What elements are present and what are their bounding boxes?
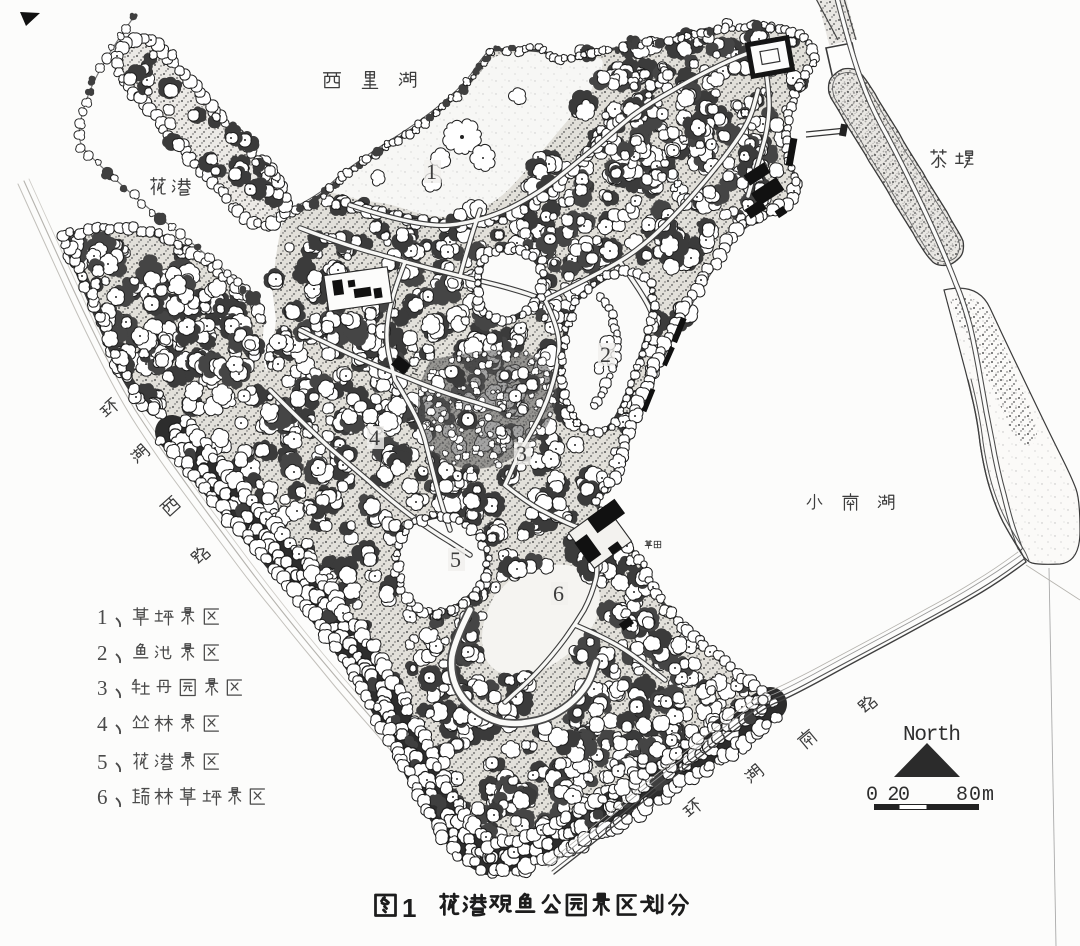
svg-text:1: 1: [97, 605, 108, 629]
svg-text:80m: 80m: [956, 784, 994, 807]
svg-text:1: 1: [426, 159, 437, 184]
svg-text:5: 5: [450, 547, 461, 572]
svg-text:2: 2: [97, 641, 108, 665]
svg-text:3: 3: [516, 441, 527, 466]
svg-text:4: 4: [369, 425, 380, 450]
svg-text:2: 2: [600, 342, 611, 367]
svg-text:4: 4: [97, 712, 108, 736]
svg-text:North: North: [903, 724, 961, 747]
svg-text:6: 6: [553, 581, 564, 606]
svg-text:1: 1: [402, 893, 416, 923]
svg-text:5: 5: [97, 750, 108, 774]
svg-text:6: 6: [97, 785, 108, 809]
svg-text:0 20: 0 20: [866, 784, 910, 807]
svg-text:3: 3: [97, 676, 108, 700]
